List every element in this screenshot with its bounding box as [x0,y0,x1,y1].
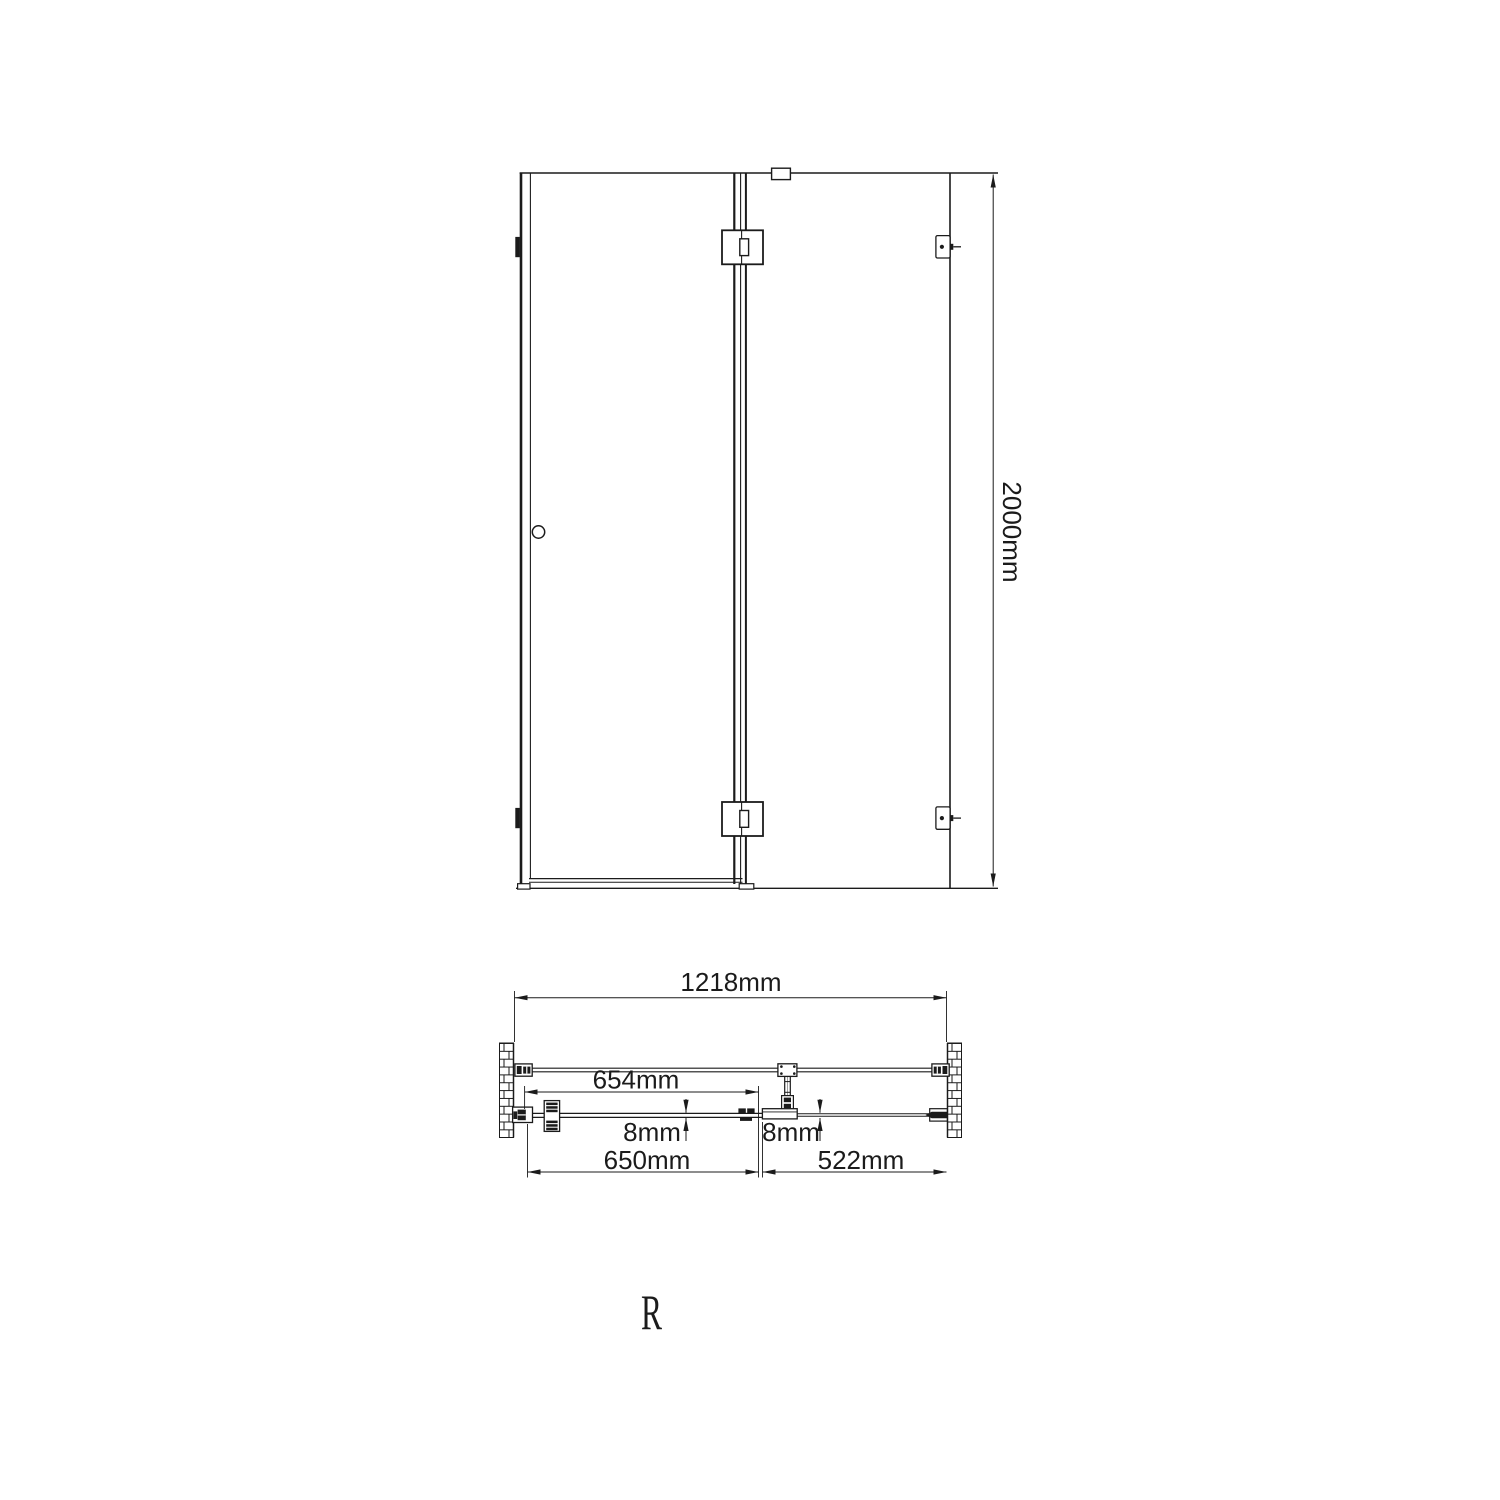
bottom-sill [518,879,754,890]
support-bar-wall-bracket-left [515,1064,532,1076]
support-bar-center-clamp [778,1064,797,1077]
front-elevation-view [515,168,998,889]
orientation-letter: R [641,1284,662,1340]
door-hinge-edge [734,173,746,884]
door-width-label: 650mm [604,1145,691,1175]
fixed-panel-wall-clamp-plan [926,1109,948,1121]
side-panel-width-label: 522mm [818,1145,905,1175]
support-bar-wall-bracket-right [932,1064,949,1076]
top-hinge [722,230,763,264]
left-wall-bracket-bottom [515,808,520,828]
height-dimension: 2000mm [991,175,1027,887]
shower-enclosure-drawing: 2000mm [0,0,1500,1500]
right-wall-bracket-top [936,236,961,258]
wall-hatch-right [948,1043,962,1138]
door-hinge-plan [738,1108,754,1120]
height-dim-label: 2000mm [997,481,1027,582]
door-wall-bracket-plan [513,1107,533,1122]
panel-glass-thickness-label: 8mm [762,1117,820,1147]
door-handle-knob [532,526,544,538]
support-arm-glass-clamp [782,1096,794,1110]
technical-drawing-page: 2000mm [0,0,1500,1500]
support-arm [785,1076,791,1096]
dim-overall-width: 1218mm [515,967,947,1042]
overall-width-label: 1218mm [680,967,781,997]
bottom-hinge [722,802,763,836]
door-glass-width-label: 654mm [593,1065,680,1095]
dim-door-glass-thickness: 8mm [623,1099,688,1147]
plan-view [500,1043,962,1138]
left-wall-bracket-top [515,237,520,257]
support-bar-clamp-front [772,168,791,179]
door-handle-plan [544,1101,559,1132]
door-glass-thickness-label: 8mm [623,1117,681,1147]
right-wall-bracket-bottom [936,807,961,829]
fixed-panel-glass-plan [797,1114,930,1117]
wall-hatch-left [500,1043,514,1138]
